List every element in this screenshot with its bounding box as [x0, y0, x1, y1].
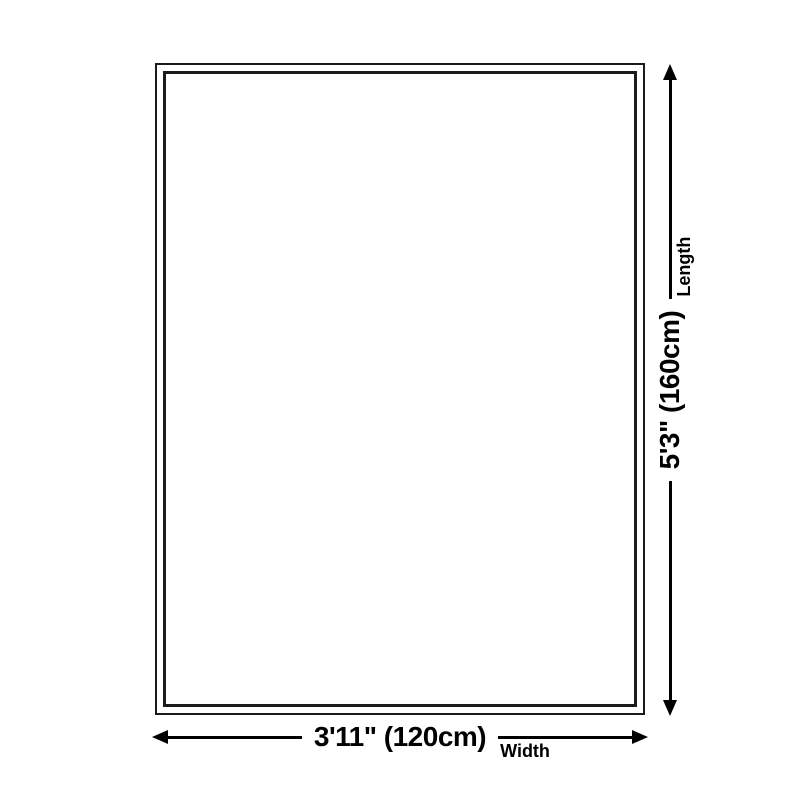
- width-dimension-line-right-wrap: Width: [498, 713, 632, 761]
- length-label: Length: [675, 237, 695, 297]
- width-dimension-line-right: [498, 736, 632, 739]
- width-value: 3'11" (120cm): [314, 723, 486, 751]
- arrow-up-icon: [663, 64, 677, 80]
- length-dimension-line-lower: [669, 481, 672, 700]
- product-outline: [155, 63, 645, 715]
- length-dimension: 5'3" (160cm) Length: [646, 64, 694, 716]
- width-label: Width: [500, 742, 550, 762]
- width-dimension: 3'11" (120cm) Width: [152, 713, 648, 761]
- length-dimension-line-upper: [669, 80, 672, 299]
- arrow-down-icon: [663, 700, 677, 716]
- arrow-left-icon: [152, 730, 168, 744]
- length-dimension-line-upper-wrap: Length: [646, 80, 694, 299]
- product-outline-inner: [163, 71, 637, 707]
- length-value: 5'3" (160cm): [656, 311, 684, 470]
- width-dimension-line-left: [168, 736, 302, 739]
- size-diagram: 5'3" (160cm) Length 3'11" (120cm) Width: [0, 0, 800, 800]
- arrow-right-icon: [632, 730, 648, 744]
